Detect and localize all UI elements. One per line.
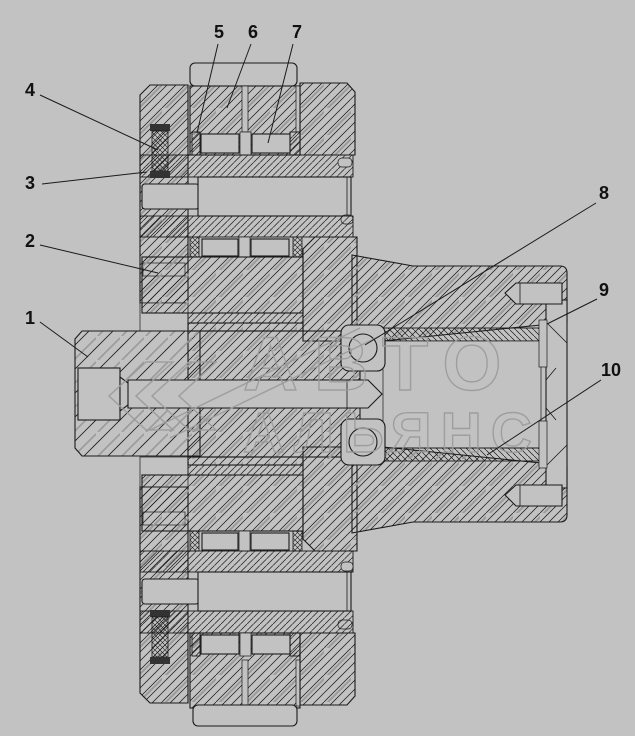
bolt-hole-lower	[505, 485, 562, 506]
bore-neck-lower	[142, 579, 199, 604]
roller	[202, 239, 238, 256]
roller-spacer	[190, 531, 199, 551]
seal-cap	[150, 657, 170, 664]
carrier-block-bottom-right	[300, 633, 355, 705]
bolt-hole-upper	[505, 283, 562, 304]
roller	[201, 134, 239, 153]
seal-cap	[150, 124, 170, 131]
circlip-notch	[341, 562, 353, 571]
watermark-line2: АЛЬЯНС	[243, 401, 541, 465]
roller-spacer	[192, 132, 200, 155]
roller-row-mid-lower	[190, 531, 302, 551]
roller	[202, 533, 238, 550]
top-gear-gap-2	[296, 86, 300, 132]
roller	[251, 239, 289, 256]
roller	[252, 635, 290, 654]
callout-label: 1	[25, 308, 35, 328]
roller-divider	[240, 132, 251, 155]
callout-label: 2	[25, 231, 35, 251]
roller-row-bottom	[192, 633, 300, 656]
callout-label: 4	[25, 80, 35, 100]
end-wall	[546, 300, 567, 488]
bottom-gear-gap-1	[242, 660, 248, 706]
gear-block-upper	[142, 257, 303, 313]
top-cap	[190, 63, 297, 86]
web-band	[140, 551, 353, 572]
roller-row-top	[192, 132, 300, 155]
bottom-cap	[193, 705, 297, 726]
roller-divider	[239, 531, 250, 551]
roller	[251, 533, 289, 550]
roller-spacer	[190, 237, 199, 257]
web-band	[140, 611, 353, 633]
seal-lower	[152, 617, 168, 657]
bore-neck-upper	[142, 184, 199, 209]
bore-lower	[198, 572, 351, 611]
roller-spacer	[290, 132, 300, 155]
roller-divider	[240, 633, 251, 656]
snap-ring-upper	[539, 320, 547, 367]
bore-upper	[198, 177, 351, 216]
engineering-drawing-canvas: АВТО АЛЬЯНС 1 2 3 4 5 6 7	[0, 0, 635, 736]
roller-spacer	[293, 531, 302, 551]
callout-label: 7	[292, 22, 302, 42]
top-gear-gap-1	[242, 86, 248, 132]
roller-divider	[239, 237, 250, 257]
roller-spacer	[192, 633, 200, 656]
gear-block-lower	[142, 475, 303, 531]
seal-upper	[152, 131, 168, 171]
roller-row-mid-upper	[190, 237, 302, 257]
roller-spacer	[290, 633, 300, 656]
callout-label: 10	[601, 360, 621, 380]
carrier-block-top-right	[300, 83, 355, 155]
seal-cap	[150, 171, 170, 178]
callout-label: 8	[599, 183, 609, 203]
shaft-end-bore	[78, 368, 120, 420]
roller	[252, 134, 290, 153]
circlip-notch	[338, 158, 352, 167]
watermark-line1: АВТО	[243, 322, 518, 407]
callout-label: 6	[248, 22, 258, 42]
web-band	[140, 216, 353, 237]
bottom-gear-gap-2	[296, 660, 300, 706]
callout-label: 3	[25, 173, 35, 193]
seal-cap	[150, 610, 170, 617]
roller-spacer	[293, 237, 302, 257]
callout-label: 9	[599, 280, 609, 300]
web-band	[140, 155, 353, 177]
callout-label: 5	[214, 22, 224, 42]
thin-band	[188, 465, 303, 475]
roller	[201, 635, 239, 654]
